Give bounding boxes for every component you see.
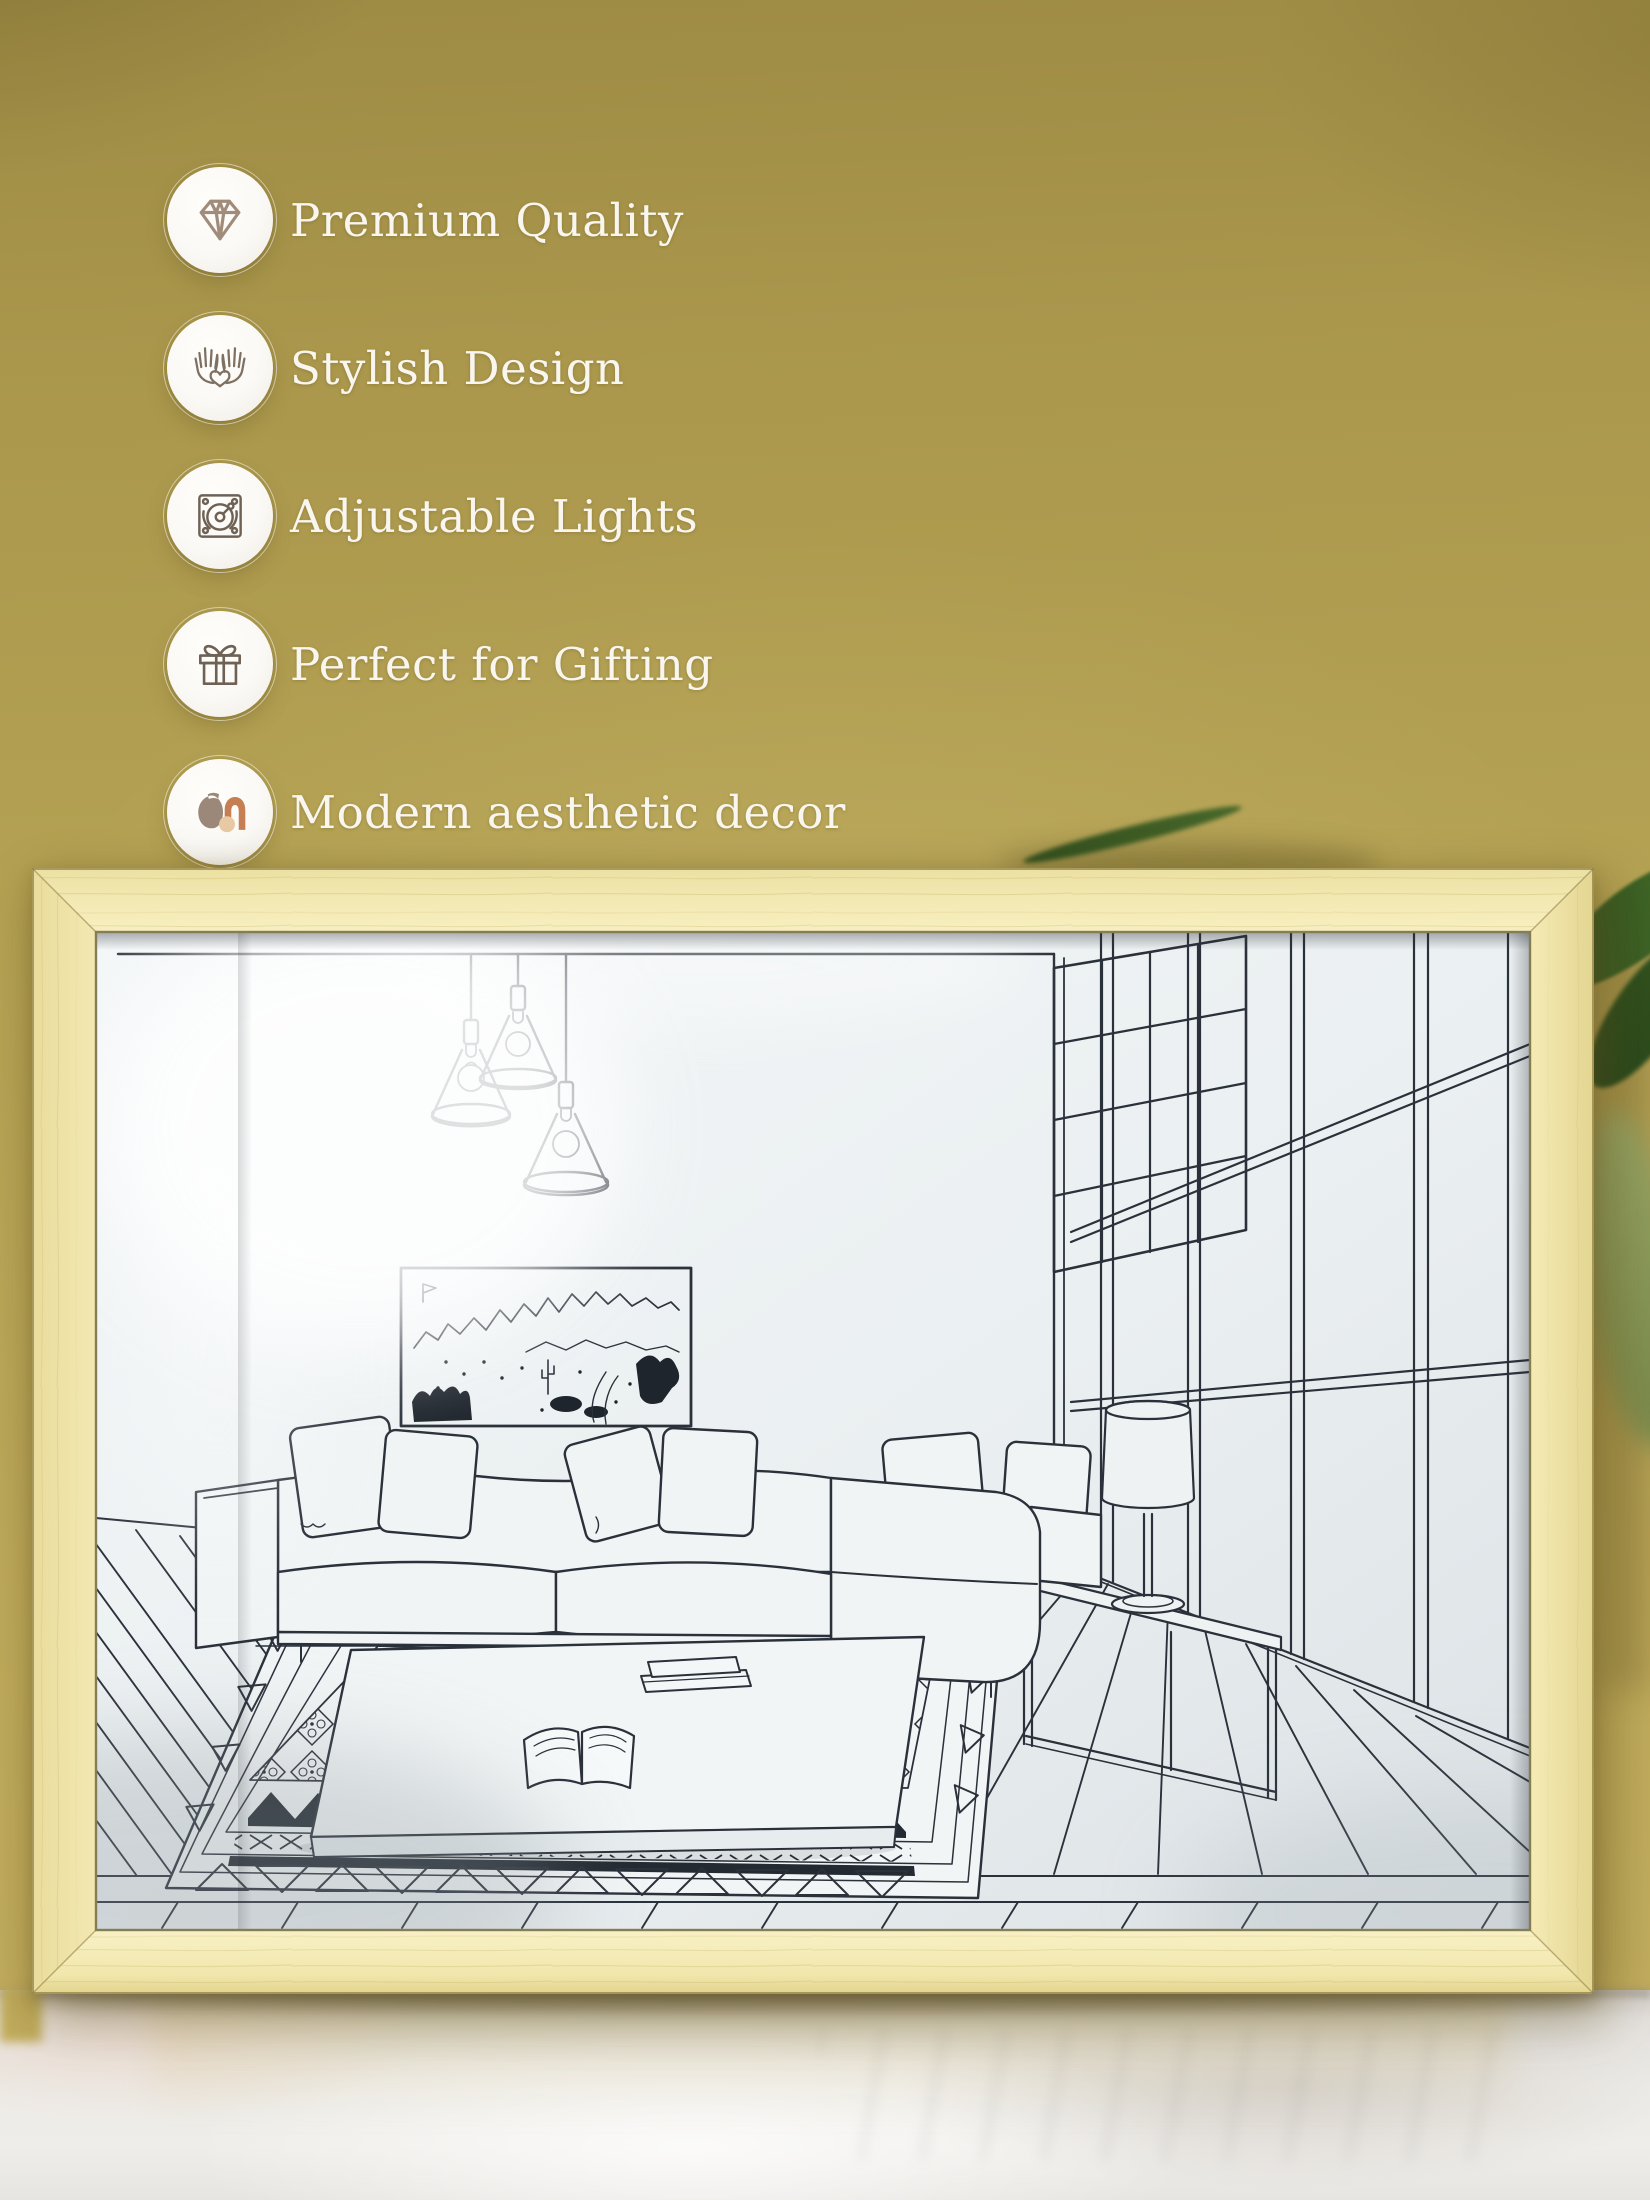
gift-box-icon (167, 611, 273, 717)
framed-light-drawing (32, 868, 1594, 1994)
feature-label: Modern aesthetic decor (290, 786, 846, 839)
vase-decor-icon (167, 759, 273, 865)
feature-adjustable-lights: Adjustable Lights (167, 463, 698, 569)
stacked-books-drawing (641, 1657, 751, 1692)
dimmer-dial-icon (167, 463, 273, 569)
product-photo: Premium Quality Stylish Design Adjustabl… (0, 0, 1650, 2200)
open-book-drawing (524, 1727, 634, 1788)
feature-label: Stylish Design (290, 342, 624, 395)
marble-streaks (820, 2030, 1520, 2160)
feature-perfect-for-gifting: Perfect for Gifting (167, 611, 714, 717)
diamond-icon (167, 167, 273, 273)
feature-label: Perfect for Gifting (290, 638, 714, 691)
hands-heart-icon (167, 315, 273, 421)
feature-stylish-design: Stylish Design (167, 315, 624, 421)
feature-label: Premium Quality (290, 194, 684, 247)
feature-modern-aesthetic-decor: Modern aesthetic decor (167, 759, 846, 865)
feature-premium-quality: Premium Quality (167, 167, 684, 273)
feature-label: Adjustable Lights (290, 490, 698, 543)
